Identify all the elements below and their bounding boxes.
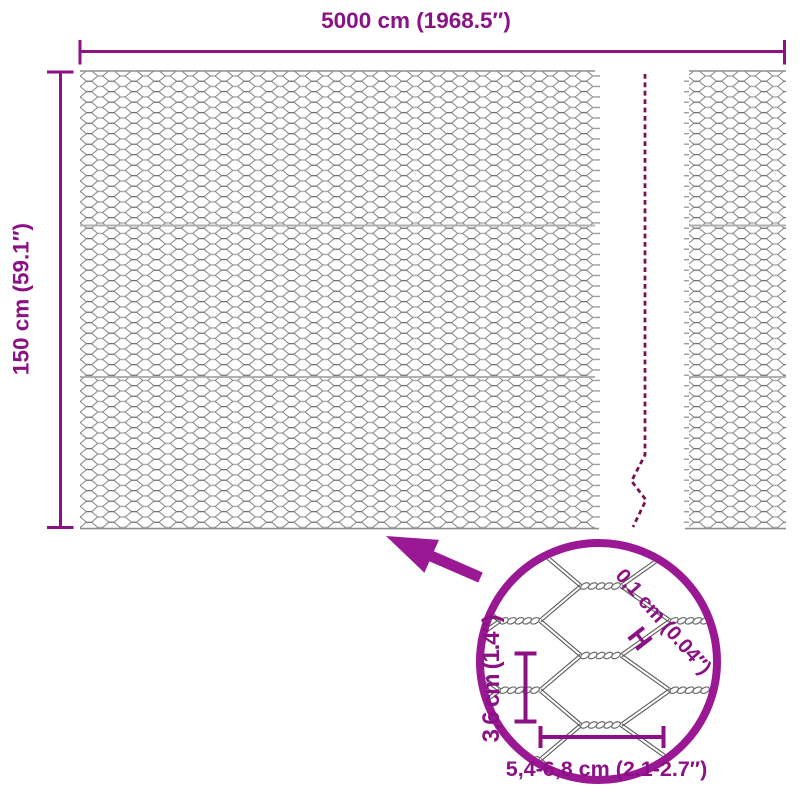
svg-text:5,4-6,8 cm (2.1-2.7″): 5,4-6,8 cm (2.1-2.7″) <box>506 757 708 781</box>
svg-text:5000 cm (1968.5″): 5000 cm (1968.5″) <box>321 8 511 33</box>
svg-text:3,6 cm (1.4″): 3,6 cm (1.4″) <box>478 615 505 742</box>
svg-text:150 cm (59.1″): 150 cm (59.1″) <box>9 223 34 375</box>
